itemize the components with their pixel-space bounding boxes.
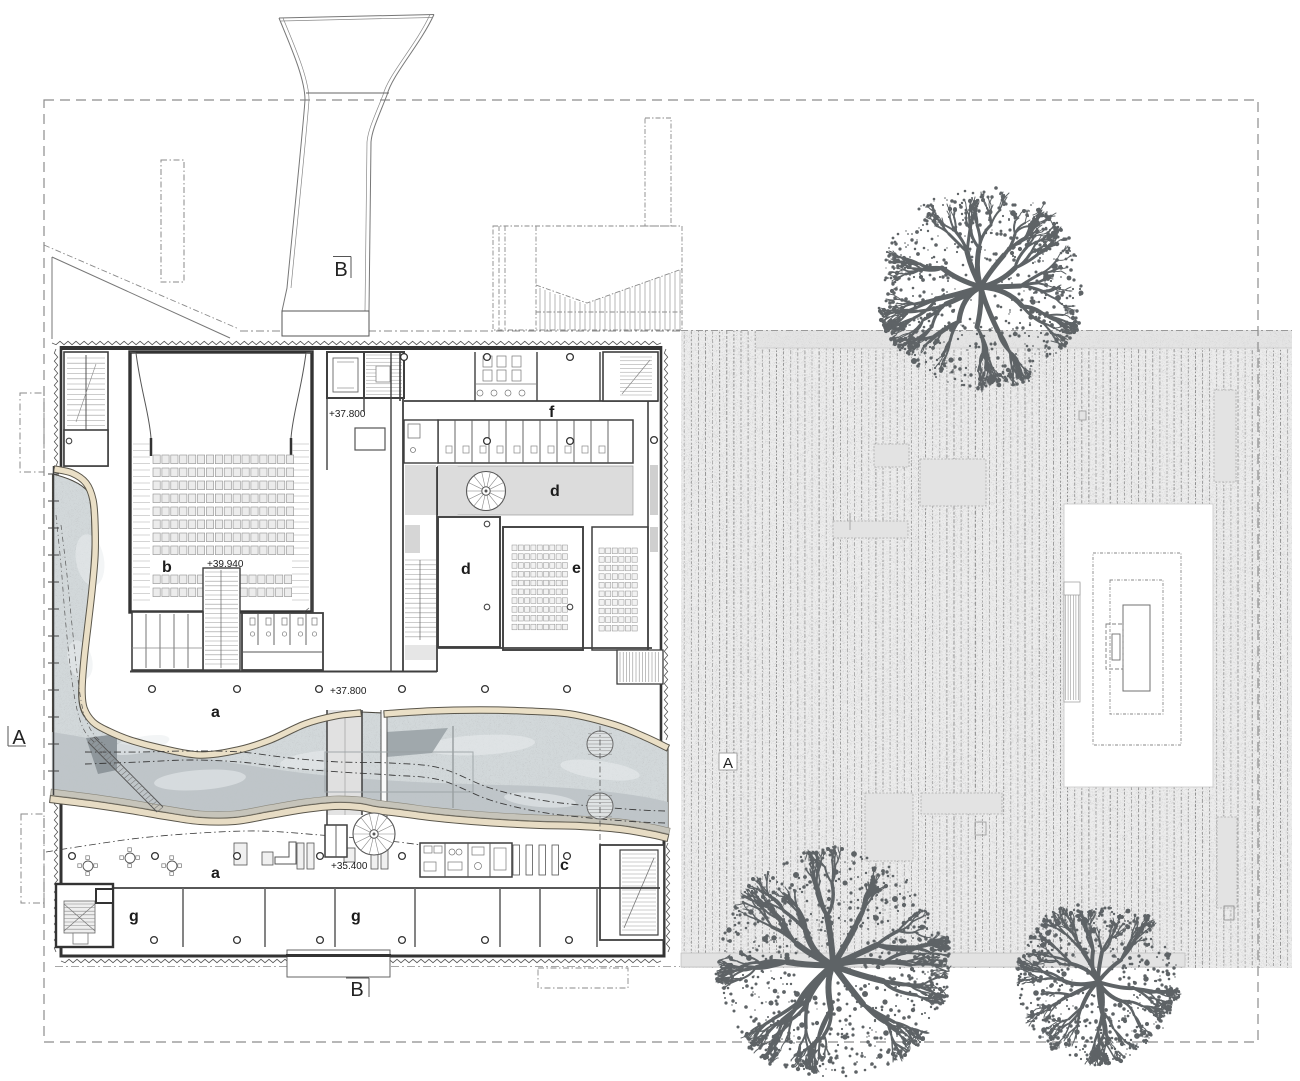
svg-text:d: d bbox=[550, 483, 560, 500]
svg-text:g: g bbox=[351, 908, 361, 925]
svg-text:+37.800: +37.800 bbox=[329, 409, 366, 420]
svg-text:+37.800: +37.800 bbox=[330, 686, 367, 697]
svg-text:a: a bbox=[211, 865, 220, 882]
svg-text:B: B bbox=[334, 259, 347, 281]
svg-text:f: f bbox=[549, 404, 555, 421]
svg-text:b: b bbox=[162, 559, 172, 576]
svg-text:B: B bbox=[350, 979, 363, 1001]
svg-text:d: d bbox=[461, 561, 471, 578]
svg-text:g: g bbox=[129, 908, 139, 925]
svg-text:c: c bbox=[560, 857, 569, 874]
svg-text:A: A bbox=[723, 755, 733, 772]
svg-text:+35.400: +35.400 bbox=[331, 861, 368, 872]
svg-text:a: a bbox=[211, 704, 220, 721]
svg-text:A: A bbox=[12, 727, 26, 749]
svg-text:e: e bbox=[572, 560, 581, 577]
